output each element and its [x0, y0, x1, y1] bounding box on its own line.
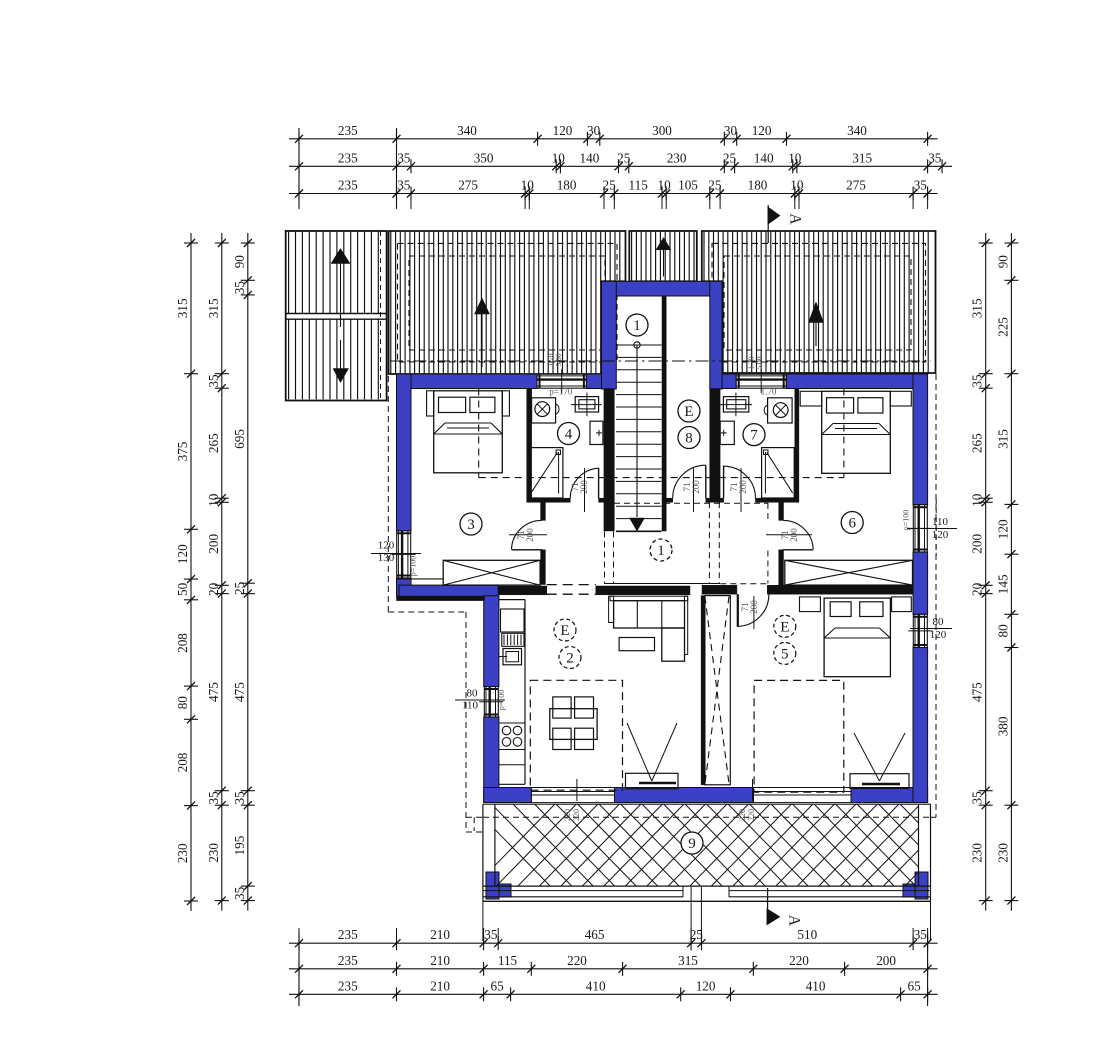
svg-text:110: 110 [462, 700, 479, 712]
svg-text:235: 235 [338, 953, 358, 968]
svg-text:25: 25 [603, 178, 617, 193]
svg-text:230: 230 [206, 843, 221, 863]
svg-text:208: 208 [175, 633, 190, 653]
svg-text:340: 340 [847, 123, 867, 138]
svg-text:210: 210 [430, 978, 450, 993]
svg-text:25: 25 [232, 581, 247, 595]
svg-text:30: 30 [587, 123, 601, 138]
svg-text:35: 35 [397, 150, 411, 165]
svg-text:235: 235 [338, 978, 358, 993]
svg-text:200: 200 [970, 534, 985, 554]
svg-text:115: 115 [498, 953, 518, 968]
svg-text:25: 25 [708, 178, 722, 193]
svg-text:35: 35 [970, 791, 985, 805]
svg-text:350: 350 [474, 150, 494, 165]
svg-text:200: 200 [749, 600, 759, 614]
svg-text:35: 35 [397, 178, 411, 193]
svg-text:20: 20 [206, 582, 221, 596]
svg-text:235: 235 [338, 123, 358, 138]
svg-text:5.00: 5.00 [554, 353, 563, 366]
svg-text:475: 475 [232, 682, 247, 702]
svg-text:475: 475 [206, 682, 221, 702]
svg-text:90: 90 [232, 255, 247, 269]
svg-text:200: 200 [206, 534, 221, 554]
svg-text:235: 235 [338, 150, 358, 165]
svg-text:465: 465 [585, 927, 605, 942]
svg-text:220: 220 [572, 809, 581, 821]
svg-text:200: 200 [876, 953, 896, 968]
svg-text:p=100: p=100 [497, 690, 506, 711]
svg-text:20: 20 [970, 582, 985, 596]
svg-text:25: 25 [723, 150, 737, 165]
svg-text:65: 65 [908, 978, 922, 993]
svg-text:1: 1 [633, 318, 641, 334]
svg-text:1: 1 [657, 543, 665, 559]
svg-text:10: 10 [790, 178, 804, 193]
svg-text:5: 5 [781, 647, 789, 663]
svg-text:E: E [560, 623, 569, 639]
svg-text:475: 475 [970, 682, 985, 702]
svg-text:340: 340 [457, 123, 477, 138]
svg-text:E: E [684, 404, 693, 420]
svg-text:5.00: 5.00 [755, 356, 764, 369]
svg-text:375: 375 [175, 441, 190, 461]
svg-text:10: 10 [521, 178, 535, 193]
svg-text:695: 695 [232, 429, 247, 449]
svg-text:80: 80 [933, 616, 945, 628]
svg-text:p=100: p=100 [409, 556, 418, 577]
svg-text:510: 510 [797, 927, 817, 942]
svg-text:120: 120 [930, 629, 947, 641]
svg-text:220: 220 [563, 809, 572, 821]
svg-text:10: 10 [658, 178, 672, 193]
svg-text:275: 275 [846, 178, 866, 193]
svg-text:35: 35 [928, 150, 942, 165]
svg-text:9: 9 [688, 836, 696, 852]
svg-text:35: 35 [970, 374, 985, 388]
svg-text:210: 210 [430, 927, 450, 942]
svg-text:50: 50 [175, 582, 190, 596]
svg-text:105: 105 [678, 178, 698, 193]
svg-text:110: 110 [932, 516, 949, 528]
svg-text:1.70: 1.70 [761, 387, 777, 397]
svg-text:180: 180 [748, 178, 768, 193]
svg-text:225: 225 [995, 317, 1010, 337]
svg-text:180: 180 [557, 178, 577, 193]
svg-text:230: 230 [970, 843, 985, 863]
svg-text:410: 410 [586, 978, 606, 993]
svg-text:3: 3 [467, 517, 475, 533]
svg-text:315: 315 [175, 298, 190, 318]
svg-text:E: E [780, 619, 789, 635]
svg-text:220: 220 [567, 953, 587, 968]
svg-text:265: 265 [970, 433, 985, 453]
svg-text:35: 35 [484, 927, 498, 942]
svg-text:200: 200 [525, 528, 535, 542]
svg-text:145: 145 [995, 574, 1010, 594]
svg-text:220: 220 [747, 809, 756, 821]
svg-text:230: 230 [667, 150, 687, 165]
svg-text:120: 120 [553, 123, 573, 138]
svg-text:80: 80 [467, 688, 479, 700]
svg-text:35: 35 [206, 791, 221, 805]
svg-text:7: 7 [750, 428, 758, 444]
svg-text:30: 30 [724, 123, 738, 138]
svg-text:10: 10 [970, 493, 985, 507]
svg-text:140: 140 [580, 150, 600, 165]
svg-text:220: 220 [738, 809, 747, 821]
svg-text:35: 35 [914, 178, 928, 193]
svg-text:35: 35 [914, 927, 928, 942]
svg-text:210: 210 [430, 953, 450, 968]
svg-text:80: 80 [995, 624, 1010, 638]
svg-text:6: 6 [848, 516, 856, 532]
svg-text:A: A [787, 213, 804, 225]
svg-text:140: 140 [754, 150, 774, 165]
svg-text:35: 35 [206, 374, 221, 388]
svg-text:120: 120 [995, 519, 1010, 539]
svg-text:35: 35 [232, 791, 247, 805]
svg-text:265: 265 [206, 433, 221, 453]
svg-text:10: 10 [206, 493, 221, 507]
svg-text:120: 120 [696, 978, 716, 993]
svg-text:195: 195 [232, 835, 247, 855]
svg-text:p=170: p=170 [549, 387, 573, 397]
svg-text:10: 10 [552, 150, 566, 165]
svg-text:235: 235 [338, 927, 358, 942]
svg-text:4: 4 [565, 427, 573, 443]
svg-text:8: 8 [685, 431, 693, 447]
svg-text:230: 230 [995, 843, 1010, 863]
svg-text:A: A [786, 915, 803, 927]
svg-text:380: 380 [995, 716, 1010, 736]
svg-text:35: 35 [232, 281, 247, 295]
svg-text:275: 275 [458, 178, 478, 193]
svg-text:90: 90 [995, 255, 1010, 269]
svg-text:115: 115 [629, 178, 649, 193]
svg-text:315: 315 [995, 429, 1010, 449]
svg-text:230: 230 [175, 843, 190, 863]
svg-text:2: 2 [566, 651, 574, 667]
svg-text:208: 208 [175, 752, 190, 772]
svg-text:200: 200 [691, 480, 701, 494]
svg-text:200: 200 [738, 480, 748, 494]
svg-text:35: 35 [232, 886, 247, 900]
svg-text:120: 120 [175, 544, 190, 564]
svg-text:315: 315 [852, 150, 872, 165]
svg-text:10: 10 [788, 150, 802, 165]
svg-text:25: 25 [617, 150, 631, 165]
svg-text:80: 80 [175, 696, 190, 710]
svg-text:315: 315 [678, 953, 698, 968]
svg-text:300: 300 [652, 123, 672, 138]
svg-text:315: 315 [206, 298, 221, 318]
svg-text:65: 65 [491, 978, 505, 993]
svg-text:p=100: p=100 [902, 510, 911, 531]
svg-text:220: 220 [789, 953, 809, 968]
svg-text:120: 120 [932, 529, 949, 541]
svg-text:200: 200 [789, 528, 799, 542]
svg-text:235: 235 [338, 178, 358, 193]
svg-text:120: 120 [752, 123, 772, 138]
svg-text:315: 315 [970, 298, 985, 318]
svg-text:410: 410 [806, 978, 826, 993]
svg-text:120: 120 [378, 540, 395, 552]
